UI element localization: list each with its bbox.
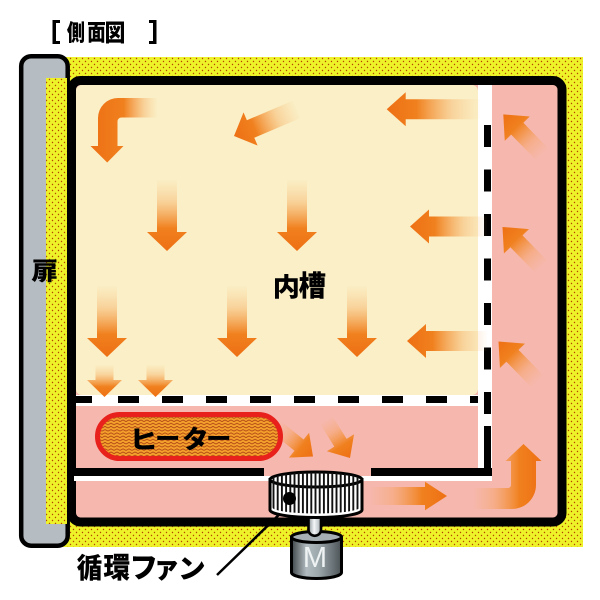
svg-text:M: M — [303, 542, 327, 574]
